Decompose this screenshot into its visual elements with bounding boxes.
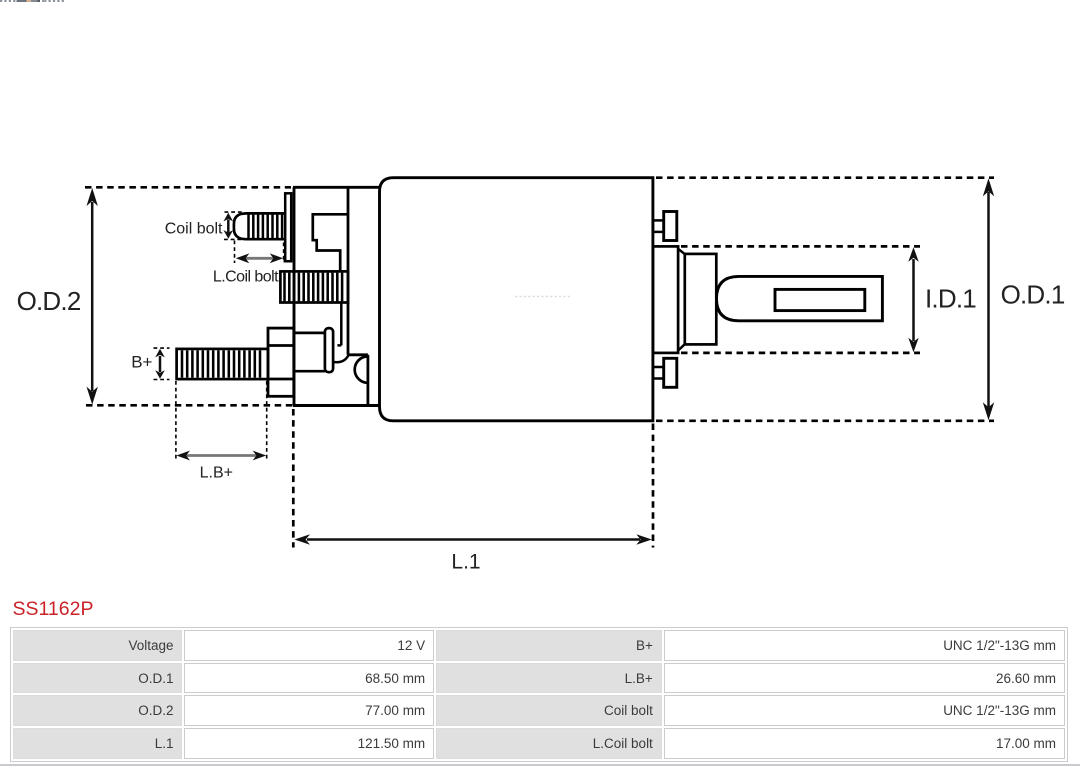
svg-text:B+: B+ <box>131 353 152 372</box>
svg-text:L.Coil bolt: L.Coil bolt <box>213 269 279 286</box>
svg-text:L.1: L.1 <box>451 551 480 574</box>
svg-text:O.D.1: O.D.1 <box>1001 280 1065 310</box>
svg-text:L.B+: L.B+ <box>200 465 233 482</box>
svg-text:O.D.2: O.D.2 <box>17 286 81 316</box>
svg-text:Coil bolt: Coil bolt <box>165 221 223 238</box>
svg-text:I.D.1: I.D.1 <box>925 284 976 314</box>
